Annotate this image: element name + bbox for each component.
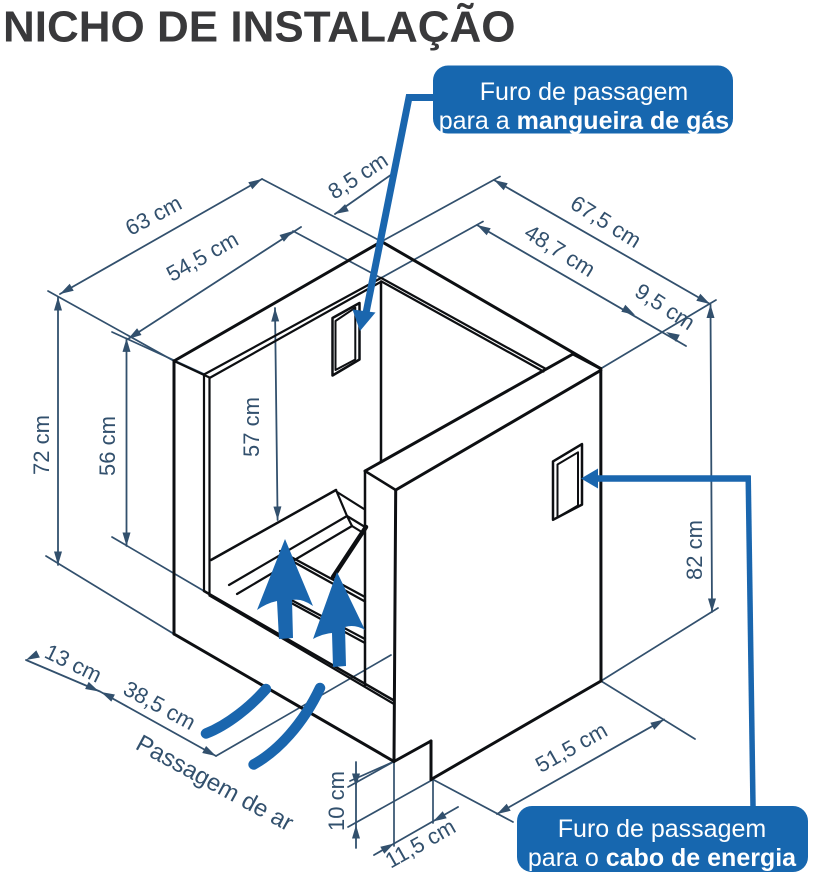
svg-text:Furo de passagem: Furo de passagem	[480, 78, 688, 106]
svg-text:para a mangueira de gás: para a mangueira de gás	[439, 107, 729, 135]
svg-text:para o cabo de energia: para o cabo de energia	[528, 844, 797, 872]
svg-text:57 cm: 57 cm	[239, 397, 264, 457]
svg-text:56 cm: 56 cm	[95, 416, 120, 476]
svg-text:72 cm: 72 cm	[29, 415, 54, 475]
svg-text:Furo de passagem: Furo de passagem	[558, 815, 766, 843]
svg-text:10 cm: 10 cm	[324, 771, 349, 831]
svg-text:82 cm: 82 cm	[682, 520, 707, 580]
svg-text:NICHO DE INSTALAÇÃO: NICHO DE INSTALAÇÃO	[3, 2, 516, 52]
